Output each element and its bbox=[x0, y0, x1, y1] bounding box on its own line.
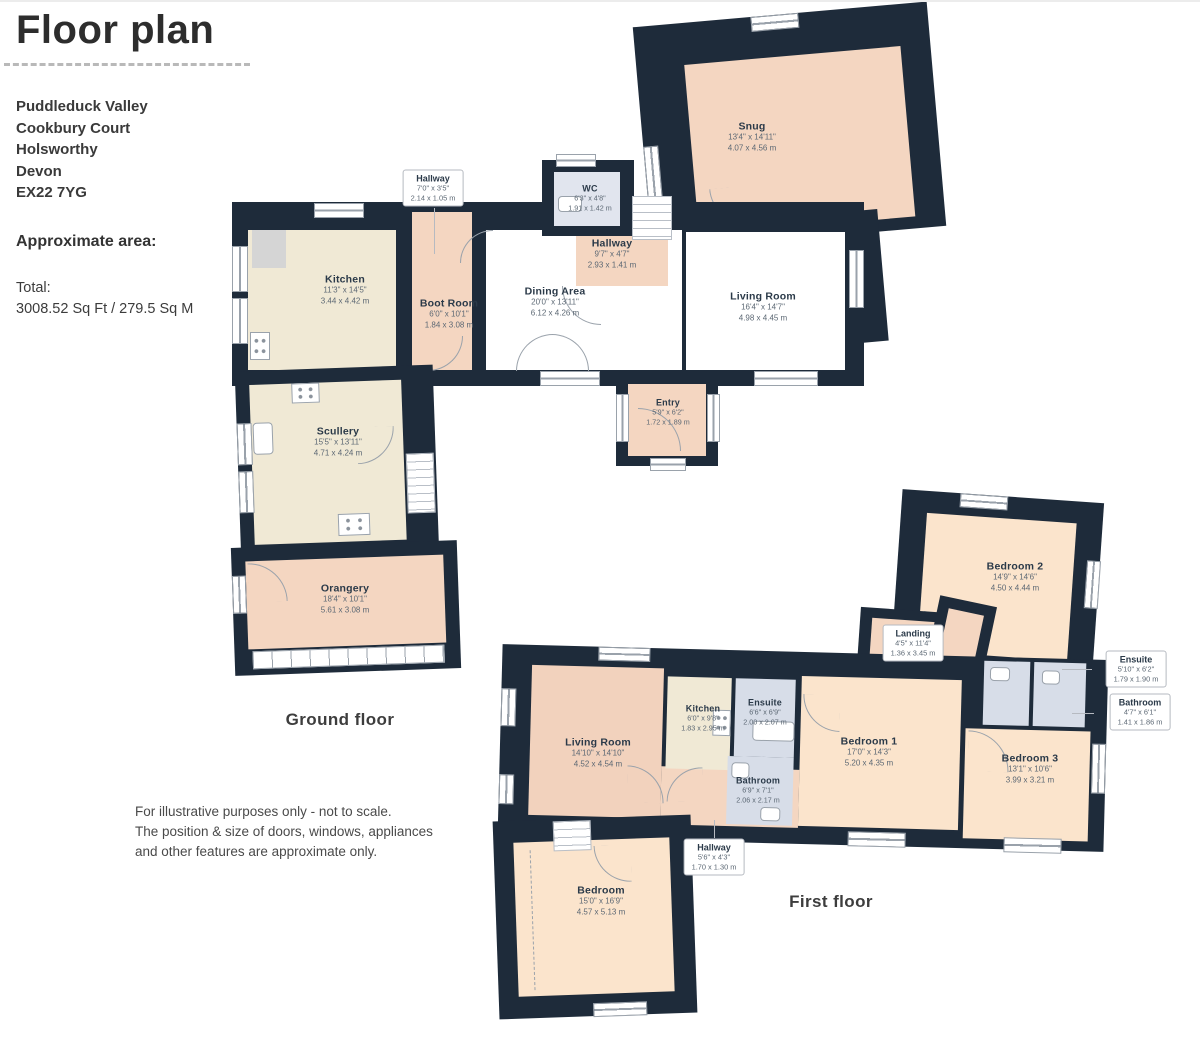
room-name: Kitchen bbox=[681, 704, 725, 714]
window bbox=[540, 371, 600, 386]
room-name: Bedroom 3 bbox=[1002, 753, 1059, 765]
room-dim-imperial: 6'9" x 7'1" bbox=[736, 786, 780, 796]
room-label-boot-room: Boot Room 6'0" x 10'1" 1.84 x 3.08 m bbox=[420, 298, 478, 331]
room-name: Dining Area bbox=[525, 286, 586, 298]
callout-landing: Landing 4'5" x 11'4" 1.36 x 3.45 m bbox=[883, 625, 944, 662]
stairs bbox=[406, 453, 436, 514]
room-dim-imperial: 6'0" x 9'8" bbox=[681, 714, 725, 724]
window bbox=[847, 831, 905, 848]
window bbox=[238, 471, 254, 513]
room-name: Bedroom bbox=[577, 885, 625, 897]
room-name: Orangery bbox=[321, 583, 369, 595]
floor-plan-page: Floor plan Puddleduck Valley Cookbury Co… bbox=[0, 0, 1200, 1039]
room-dim-metric: 1.70 x 1.30 m bbox=[692, 862, 737, 872]
first-floor-caption: First floor bbox=[789, 892, 873, 912]
room-name: Scullery bbox=[314, 426, 362, 438]
room-label-bedroom-first: Bedroom 15'0" x 16'9" 4.57 x 5.13 m bbox=[577, 885, 625, 918]
room-label-kitchen: Kitchen 11'3" x 14'5" 3.44 x 4.42 m bbox=[321, 274, 369, 307]
room-dim-imperial: 20'0" x 13'11" bbox=[525, 298, 586, 309]
room-name: Entry bbox=[646, 398, 690, 408]
sink bbox=[760, 807, 780, 822]
room-name: Hallway bbox=[692, 843, 737, 853]
room-dim-imperial: 13'4" x 14'11" bbox=[728, 133, 776, 144]
room-dim-metric: 2.93 x 1.41 m bbox=[588, 260, 636, 271]
callout-ensuite2: Ensuite 5'10" x 6'2" 1.79 x 1.90 m bbox=[1106, 651, 1167, 688]
title-underline bbox=[4, 63, 250, 66]
leader-line bbox=[1062, 669, 1092, 670]
room-label-entry: Entry 5'9" x 6'2" 1.72 x 1.89 m bbox=[646, 398, 690, 427]
room-label-snug: Snug 13'4" x 14'11" 4.07 x 4.56 m bbox=[728, 121, 776, 154]
room-dim-imperial: 15'0" x 16'9" bbox=[577, 897, 625, 908]
stairs bbox=[553, 820, 592, 851]
callout-hallway-small: Hallway 7'0" x 3'5" 2.14 x 1.05 m bbox=[403, 170, 464, 207]
room-dim-imperial: 4'5" x 11'4" bbox=[891, 639, 936, 649]
room-dim-imperial: 15'5" x 13'11" bbox=[314, 438, 362, 449]
window bbox=[849, 250, 864, 308]
room-label-dining-area: Dining Area 20'0" x 13'11" 6.12 x 4.26 m bbox=[525, 286, 586, 319]
window bbox=[1003, 837, 1061, 854]
room-dim-imperial: 5'10" x 6'2" bbox=[1114, 665, 1159, 675]
disclaimer-line: For illustrative purposes only - not to … bbox=[135, 802, 433, 822]
callout-bathroom2: Bathroom 4'7" x 6'1" 1.41 x 1.86 m bbox=[1110, 694, 1171, 731]
property-address: Puddleduck Valley Cookbury Court Holswor… bbox=[16, 96, 148, 204]
room-scullery bbox=[249, 380, 406, 545]
callout-hallway-first: Hallway 5'6" x 4'3" 1.70 x 1.30 m bbox=[684, 839, 745, 876]
room-dim-metric: 3.99 x 3.21 m bbox=[1002, 775, 1059, 786]
room-name: Landing bbox=[891, 629, 936, 639]
window bbox=[232, 575, 247, 613]
total-value: 3008.52 Sq Ft / 279.5 Sq M bbox=[16, 301, 193, 317]
window bbox=[1091, 744, 1106, 794]
room-label-living-room-first: Living Room 14'10" x 14'10" 4.52 x 4.54 … bbox=[565, 737, 631, 770]
room-dim-metric: 1.83 x 2.95 m bbox=[681, 723, 725, 733]
room-dim-imperial: 4'7" x 6'1" bbox=[1118, 708, 1163, 718]
address-line: Holsworthy bbox=[16, 139, 148, 161]
toilet bbox=[990, 667, 1010, 682]
window bbox=[598, 647, 650, 662]
room-label-living-room-ground: Living Room 16'4" x 14'7" 4.98 x 4.45 m bbox=[730, 291, 796, 324]
room-name: Bedroom 2 bbox=[987, 561, 1044, 573]
area-heading: Approximate area: bbox=[16, 233, 157, 251]
window bbox=[959, 493, 1008, 510]
window bbox=[237, 423, 253, 465]
room-label-scullery: Scullery 15'5" x 13'11" 4.71 x 4.24 m bbox=[314, 426, 362, 459]
scullery-block bbox=[235, 365, 440, 564]
room-dim-metric: 4.52 x 4.54 m bbox=[565, 759, 631, 770]
room-label-hallway-ground: Hallway 9'7" x 4'7" 2.93 x 1.41 m bbox=[588, 238, 636, 271]
room-dim-imperial: 7'0" x 3'5" bbox=[411, 184, 456, 194]
window bbox=[593, 1001, 647, 1017]
room-dim-imperial: 13'1" x 10'6" bbox=[1002, 765, 1059, 776]
room-dim-imperial: 6'3" x 4'8" bbox=[568, 194, 612, 204]
address-line: Cookbury Court bbox=[16, 118, 148, 140]
window bbox=[500, 688, 516, 726]
page-title: Floor plan bbox=[16, 8, 214, 53]
room-dim-metric: 1.41 x 1.86 m bbox=[1118, 717, 1163, 727]
room-dim-metric: 4.98 x 4.45 m bbox=[730, 313, 796, 324]
window bbox=[616, 394, 629, 442]
disclaimer-line: and other features are approximate only. bbox=[135, 842, 433, 862]
address-line: Puddleduck Valley bbox=[16, 96, 148, 118]
room-name: Living Room bbox=[565, 737, 631, 749]
total-label: Total: bbox=[16, 280, 51, 296]
room-label-bedroom3: Bedroom 3 13'1" x 10'6" 3.99 x 3.21 m bbox=[1002, 753, 1059, 786]
room-dim-metric: 1.84 x 3.08 m bbox=[420, 320, 478, 331]
window bbox=[498, 774, 514, 804]
room-dim-imperial: 17'0" x 14'3" bbox=[841, 748, 898, 759]
disclaimer-text: For illustrative purposes only - not to … bbox=[135, 802, 433, 862]
room-label-ensuite1: Ensuite 6'6" x 6'9" 2.00 x 2.07 m bbox=[743, 698, 787, 727]
room-dim-metric: 2.14 x 1.05 m bbox=[411, 193, 456, 203]
room-name: Bathroom bbox=[736, 776, 780, 786]
room-label-kitchen-first: Kitchen 6'0" x 9'8" 1.83 x 2.95 m bbox=[681, 704, 725, 733]
room-name: Kitchen bbox=[321, 274, 369, 286]
ground-floor-caption: Ground floor bbox=[286, 710, 395, 730]
room-dim-metric: 3.44 x 4.42 m bbox=[321, 296, 369, 307]
room-dim-imperial: 14'10" x 14'10" bbox=[565, 749, 631, 760]
hob-appliance bbox=[250, 332, 270, 360]
window bbox=[556, 154, 596, 167]
room-dim-metric: 4.07 x 4.56 m bbox=[728, 143, 776, 154]
room-dim-imperial: 14'9" x 14'6" bbox=[987, 573, 1044, 584]
sink bbox=[253, 422, 274, 455]
hob-appliance bbox=[338, 513, 371, 536]
window bbox=[754, 371, 818, 386]
room-label-bedroom2: Bedroom 2 14'9" x 14'6" 4.50 x 4.44 m bbox=[987, 561, 1044, 594]
window bbox=[314, 203, 364, 218]
window bbox=[232, 246, 248, 292]
room-name: Snug bbox=[728, 121, 776, 133]
room-dim-metric: 1.79 x 1.90 m bbox=[1114, 674, 1159, 684]
room-dim-imperial: 18'4" x 10'1" bbox=[321, 595, 369, 606]
window bbox=[707, 394, 720, 442]
room-dim-imperial: 11'3" x 14'5" bbox=[321, 286, 369, 297]
hob-appliance bbox=[291, 383, 320, 404]
window bbox=[650, 458, 686, 471]
sink bbox=[1042, 670, 1060, 684]
room-dim-imperial: 5'9" x 6'2" bbox=[646, 408, 690, 418]
room-dim-metric: 1.36 x 3.45 m bbox=[891, 648, 936, 658]
window bbox=[232, 298, 248, 344]
room-dim-metric: 4.71 x 4.24 m bbox=[314, 448, 362, 459]
room-dim-metric: 4.57 x 5.13 m bbox=[577, 907, 625, 918]
room-name: Ensuite bbox=[743, 698, 787, 708]
room-label-wc: WC 6'3" x 4'8" 1.91 x 1.42 m bbox=[568, 184, 612, 213]
room-dim-metric: 5.20 x 4.35 m bbox=[841, 758, 898, 769]
stairs bbox=[632, 196, 672, 240]
leader-line bbox=[1072, 713, 1094, 714]
room-dim-metric: 1.91 x 1.42 m bbox=[568, 203, 612, 213]
disclaimer-line: The position & size of doors, windows, a… bbox=[135, 822, 433, 842]
room-dim-imperial: 16'4" x 14'7" bbox=[730, 303, 796, 314]
window bbox=[750, 13, 799, 32]
room-dim-imperial: 9'7" x 4'7" bbox=[588, 250, 636, 261]
room-dim-metric: 1.72 x 1.89 m bbox=[646, 417, 690, 427]
room-name: Bedroom 1 bbox=[841, 736, 898, 748]
room-name: Bathroom bbox=[1118, 698, 1163, 708]
room-dim-metric: 5.61 x 3.08 m bbox=[321, 605, 369, 616]
room-name: Boot Room bbox=[420, 298, 478, 310]
room-name: WC bbox=[568, 184, 612, 194]
room-label-orangery: Orangery 18'4" x 10'1" 5.61 x 3.08 m bbox=[321, 583, 369, 616]
room-name: Living Room bbox=[730, 291, 796, 303]
room-label-bathroom1: Bathroom 6'9" x 7'1" 2.06 x 2.17 m bbox=[736, 776, 780, 805]
room-dim-imperial: 6'0" x 10'1" bbox=[420, 310, 478, 321]
leader-line bbox=[714, 820, 715, 838]
room-dim-imperial: 5'6" x 4'3" bbox=[692, 853, 737, 863]
room-name: Hallway bbox=[411, 174, 456, 184]
room-name: Ensuite bbox=[1114, 655, 1159, 665]
room-dim-metric: 2.06 x 2.17 m bbox=[736, 795, 780, 805]
room-dim-imperial: 6'6" x 6'9" bbox=[743, 708, 787, 718]
window bbox=[1084, 560, 1101, 609]
address-line: Devon bbox=[16, 161, 148, 183]
room-name: Hallway bbox=[588, 238, 636, 250]
room-dim-metric: 2.00 x 2.07 m bbox=[743, 717, 787, 727]
address-line: EX22 7YG bbox=[16, 182, 148, 204]
fridge-appliance bbox=[252, 230, 286, 268]
room-dim-metric: 6.12 x 4.26 m bbox=[525, 308, 586, 319]
room-label-bedroom1: Bedroom 1 17'0" x 14'3" 5.20 x 4.35 m bbox=[841, 736, 898, 769]
leader-line bbox=[434, 208, 435, 254]
room-dim-metric: 4.50 x 4.44 m bbox=[987, 583, 1044, 594]
